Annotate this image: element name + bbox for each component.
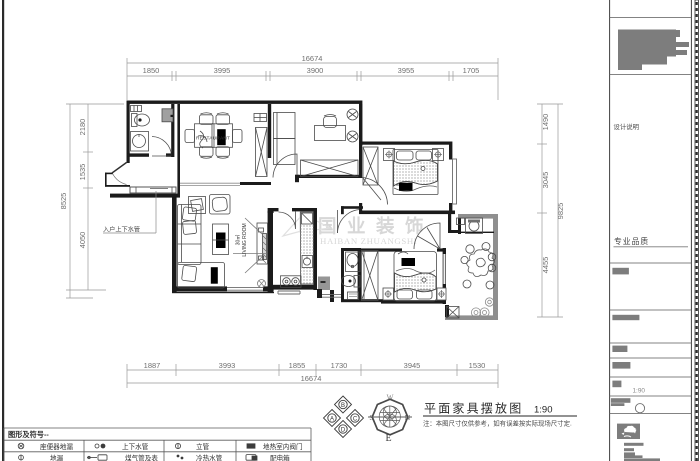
svg-text:专业品质: 专业品质 xyxy=(614,236,649,246)
svg-text:9825: 9825 xyxy=(556,203,565,220)
svg-text:平面家具摆放图: 平面家具摆放图 xyxy=(424,401,523,416)
svg-text:30㎡: 30㎡ xyxy=(235,235,242,246)
svg-text:图形及符号--: 图形及符号-- xyxy=(8,430,49,439)
svg-text:1850: 1850 xyxy=(143,66,160,75)
svg-text:地热室内阀门: 地热室内阀门 xyxy=(263,442,303,451)
svg-text:HAIBAN ZHUANGSHI: HAIBAN ZHUANGSHI xyxy=(320,236,417,246)
svg-text:4455: 4455 xyxy=(541,257,550,274)
svg-text:设计说明: 设计说明 xyxy=(614,122,640,131)
svg-text:3900: 3900 xyxy=(307,66,324,75)
svg-text:16674: 16674 xyxy=(301,374,322,383)
svg-text:1535: 1535 xyxy=(78,164,87,181)
svg-text:立管: 立管 xyxy=(196,442,210,451)
svg-text:配电箱: 配电箱 xyxy=(270,454,290,461)
svg-text:1887: 1887 xyxy=(144,361,161,370)
svg-text:国业装饰: 国业装饰 xyxy=(318,216,434,238)
svg-text:A: A xyxy=(330,417,334,423)
svg-text:RESTAURANT: RESTAURANT xyxy=(196,136,230,142)
svg-text:煤气管及表: 煤气管及表 xyxy=(125,454,158,461)
svg-text:3955: 3955 xyxy=(398,66,415,75)
svg-text:1705: 1705 xyxy=(463,66,480,75)
svg-text:8525: 8525 xyxy=(59,193,68,210)
svg-text:B: B xyxy=(341,403,345,409)
svg-text:3045: 3045 xyxy=(541,172,550,189)
svg-text:C: C xyxy=(353,417,358,423)
svg-text:N: N xyxy=(405,413,411,422)
svg-text:地漏: 地漏 xyxy=(50,454,64,461)
svg-text:座便器地漏: 座便器地漏 xyxy=(40,442,73,451)
svg-text:入户上下水管: 入户上下水管 xyxy=(103,226,140,234)
svg-text:1855: 1855 xyxy=(289,361,306,370)
svg-text:1730: 1730 xyxy=(331,361,348,370)
svg-text:S: S xyxy=(369,413,373,422)
svg-text:1:90: 1:90 xyxy=(633,388,646,395)
svg-text:冷热水管: 冷热水管 xyxy=(196,454,223,461)
svg-text:W: W xyxy=(386,393,394,402)
svg-text:1490: 1490 xyxy=(541,114,550,131)
svg-text:3993: 3993 xyxy=(219,361,236,370)
svg-text:D: D xyxy=(341,428,346,434)
svg-text:16674: 16674 xyxy=(302,54,323,63)
svg-text:注：本图尺寸仅供参考，如有误差按实际现场尺寸定.: 注：本图尺寸仅供参考，如有误差按实际现场尺寸定. xyxy=(423,419,572,428)
svg-text:1:90: 1:90 xyxy=(534,405,553,416)
svg-text:LIVING ROOM: LIVING ROOM xyxy=(242,223,248,256)
svg-text:2180: 2180 xyxy=(78,119,87,136)
svg-text:3945: 3945 xyxy=(404,361,421,370)
svg-text:3995: 3995 xyxy=(214,66,231,75)
svg-text:1530: 1530 xyxy=(469,361,486,370)
svg-text:4050: 4050 xyxy=(78,232,87,249)
svg-text:上下水管: 上下水管 xyxy=(122,442,149,451)
svg-text:E: E xyxy=(385,433,391,444)
